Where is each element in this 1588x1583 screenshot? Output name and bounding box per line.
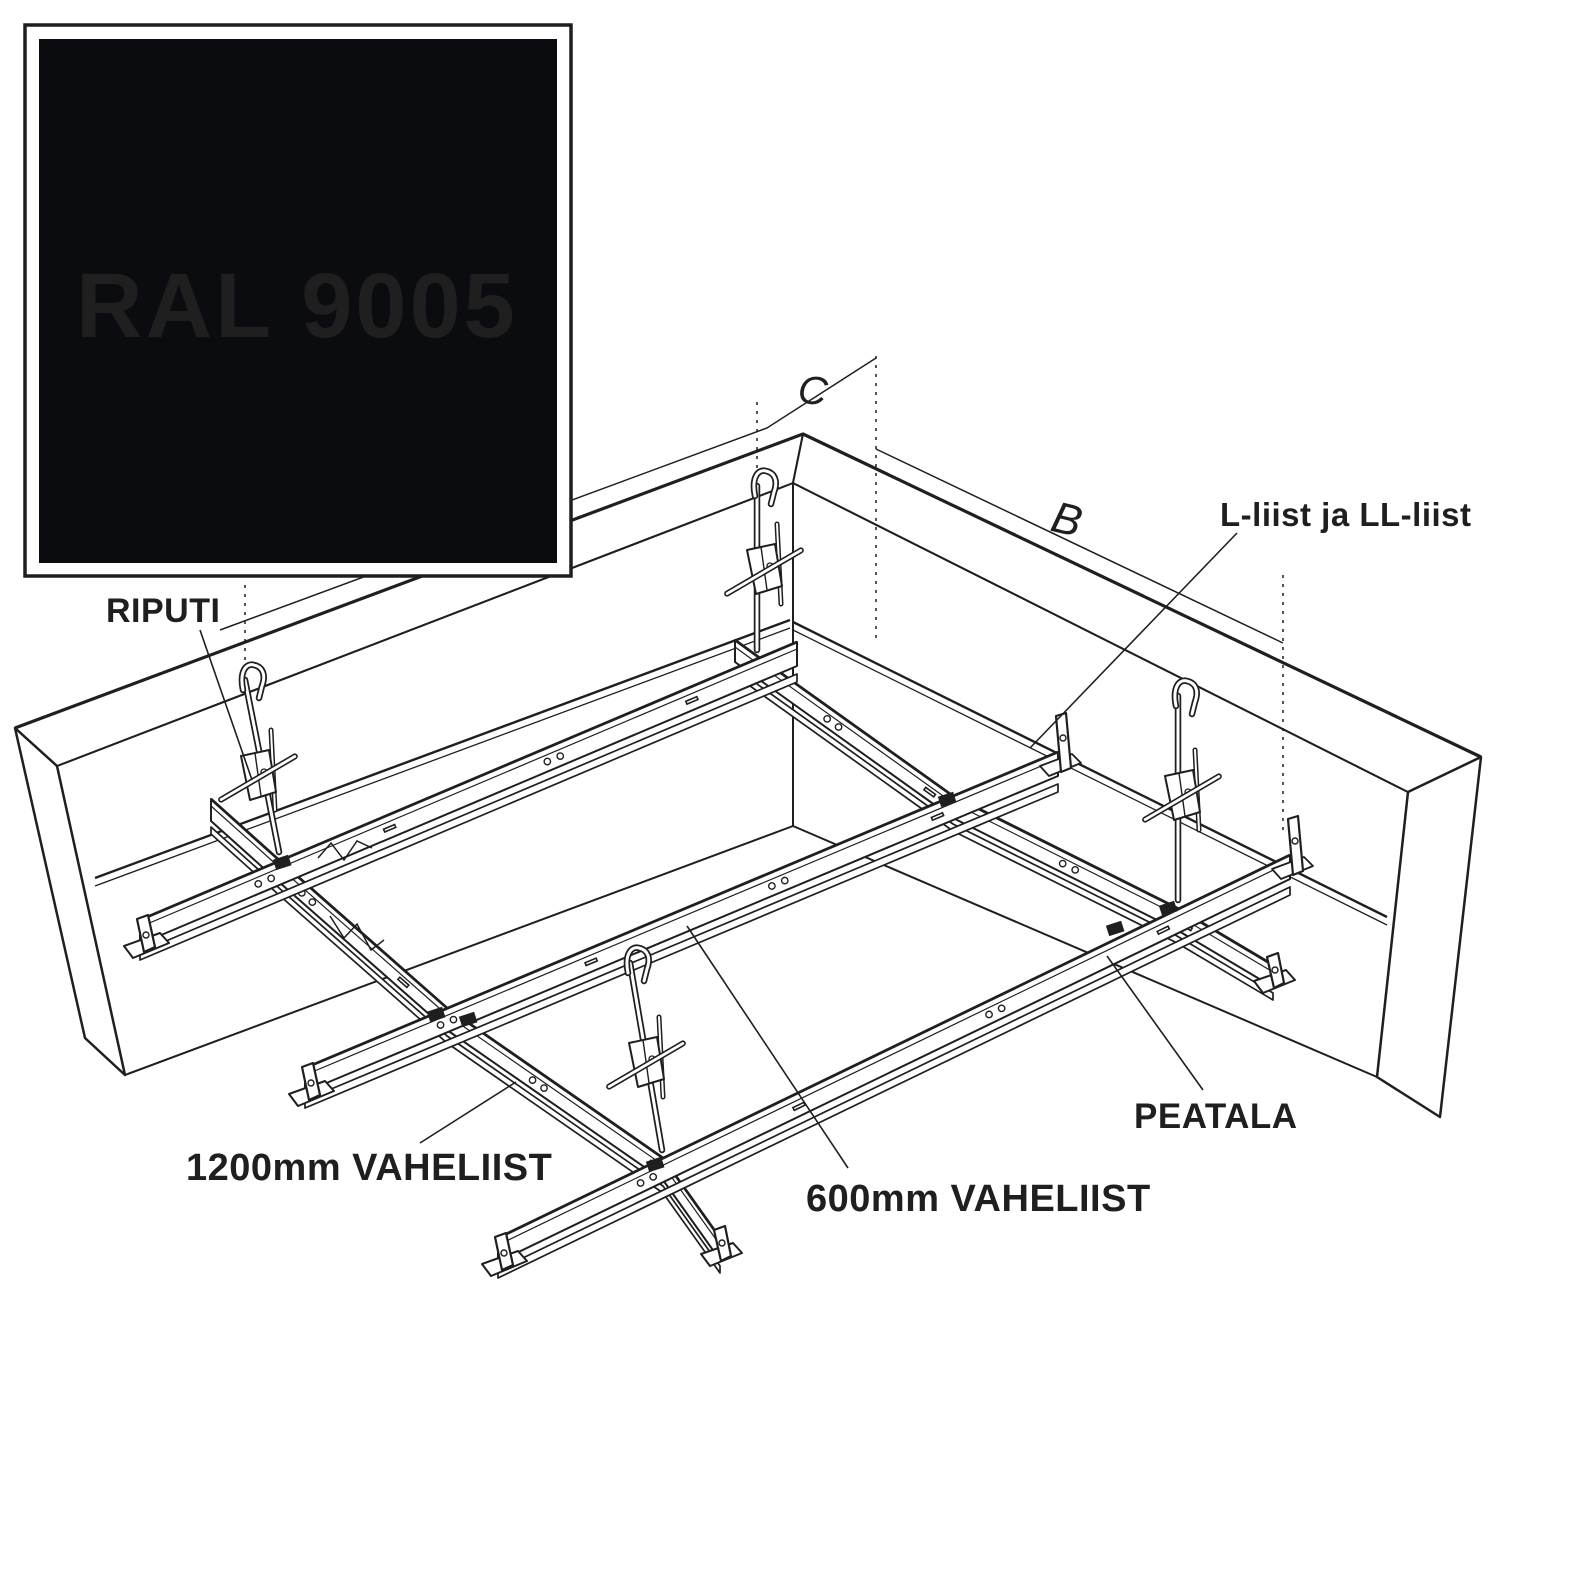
diagram-canvas: RAL 9005 RIPUTI L-liist ja LL-liist 1200…	[0, 0, 1588, 1583]
label-dim-b: B	[1047, 492, 1087, 547]
hanger	[609, 948, 683, 1150]
color-swatch: RAL 9005	[25, 25, 571, 576]
ceiling-installation-diagram: RAL 9005 RIPUTI L-liist ja LL-liist 1200…	[0, 0, 1588, 1583]
label-l-liist: L-liist ja LL-liist	[1220, 496, 1472, 533]
swatch-label: RAL 9005	[76, 255, 518, 357]
label-vaheliist-1200: 1200mm VAHELIIST	[186, 1147, 552, 1189]
label-peatala: PEATALA	[1134, 1097, 1298, 1136]
label-vaheliist-600: 600mm VAHELIIST	[806, 1178, 1151, 1220]
label-dim-c: C	[795, 367, 831, 415]
label-riputi: RIPUTI	[106, 592, 220, 630]
